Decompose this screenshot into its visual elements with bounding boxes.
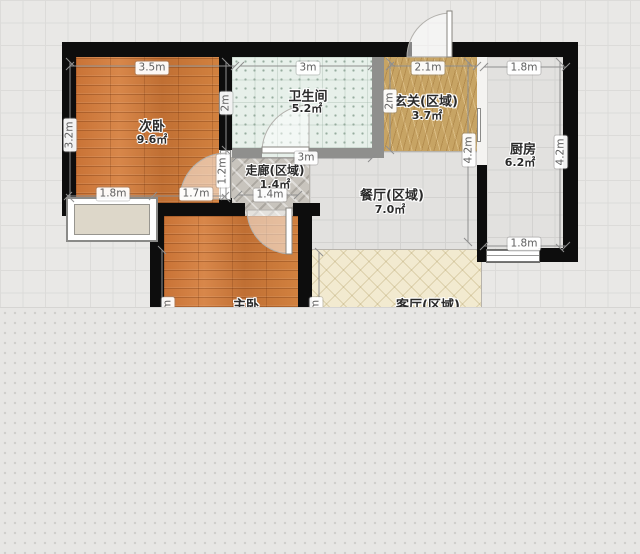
door-swings[interactable] bbox=[180, 13, 451, 254]
doors-and-dimension-lines bbox=[0, 0, 640, 307]
dim-dining-height: 4.2m bbox=[463, 134, 476, 167]
dim-kitchen-height: 4.2m bbox=[555, 136, 568, 169]
plan-grid-area[interactable]: 次卧 9.6㎡ 卫生间 5.2㎡ 玄关(区域) 3.7㎡ 走廊(区域) 1.4㎡… bbox=[0, 0, 640, 307]
entry-door-arc bbox=[407, 13, 451, 57]
dim-bedroom2-height: 3.2m bbox=[64, 119, 77, 152]
area-bathroom: 5.2㎡ bbox=[292, 100, 323, 116]
dim-bedroom2-bottom-left: 1.8m bbox=[97, 188, 130, 201]
dim-bedroom2-width: 3.5m bbox=[136, 62, 169, 75]
label-living: 客厅(区域) bbox=[396, 295, 460, 308]
area-entry: 3.7㎡ bbox=[412, 107, 443, 123]
dim-bedroom2-right-lower: 1.2m bbox=[217, 155, 230, 188]
area-bedroom2: 9.6㎡ bbox=[137, 131, 168, 147]
dim-kitchen-width: 1.8m bbox=[508, 62, 541, 75]
dim-bedroom2-right-upper: 2m bbox=[220, 92, 233, 115]
dim-corridor-door: 1.4m bbox=[254, 189, 287, 202]
bedroom1-door-arc bbox=[247, 210, 291, 254]
bedroom1-door-leaf bbox=[286, 208, 292, 254]
area-kitchen: 6.2㎡ bbox=[505, 154, 536, 170]
dim-bedroom2-bottom-right: 1.7m bbox=[180, 188, 213, 201]
dim-clipped-bedroom1: m bbox=[162, 297, 175, 307]
entry-door-leaf bbox=[447, 11, 452, 57]
label-bedroom1: 主卧 bbox=[233, 295, 259, 308]
dim-kitchen-window: 1.8m bbox=[508, 238, 541, 251]
floorplan-canvas: 次卧 9.6㎡ 卫生间 5.2㎡ 玄关(区域) 3.7㎡ 走廊(区域) 1.4㎡… bbox=[0, 0, 640, 554]
dim-corridor-span: 3m bbox=[295, 152, 318, 165]
dim-clipped-living: m bbox=[310, 297, 323, 307]
dim-entry-left-height: 2m bbox=[384, 90, 397, 113]
area-dining: 7.0㎡ bbox=[375, 201, 406, 217]
blank-dotted-panel bbox=[0, 307, 640, 554]
dim-bathroom-width: 3m bbox=[297, 62, 320, 75]
dim-entry-width: 2.1m bbox=[412, 62, 445, 75]
